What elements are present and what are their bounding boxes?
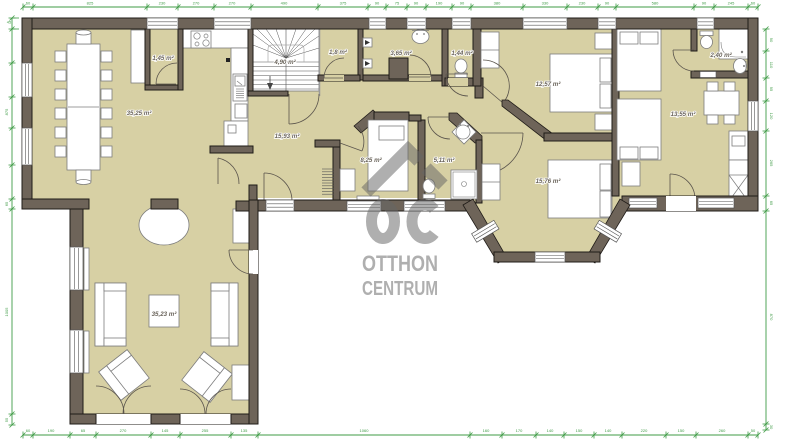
svg-text:60: 60 bbox=[26, 428, 31, 433]
svg-text:90: 90 bbox=[460, 1, 465, 6]
svg-text:60: 60 bbox=[751, 1, 756, 6]
svg-text:120: 120 bbox=[769, 113, 774, 120]
svg-text:825: 825 bbox=[87, 1, 94, 6]
svg-text:1,8 m²: 1,8 m² bbox=[329, 49, 348, 56]
svg-text:870: 870 bbox=[769, 314, 774, 321]
svg-text:270: 270 bbox=[120, 428, 127, 433]
svg-text:CENTRUM: CENTRUM bbox=[362, 278, 438, 300]
svg-text:190: 190 bbox=[48, 428, 55, 433]
svg-text:8,25 m²: 8,25 m² bbox=[360, 157, 382, 164]
svg-text:1005: 1005 bbox=[4, 307, 9, 317]
svg-text:90: 90 bbox=[414, 1, 419, 6]
svg-text:OTTHON: OTTHON bbox=[362, 251, 438, 276]
svg-text:220: 220 bbox=[641, 428, 648, 433]
svg-text:255: 255 bbox=[202, 428, 209, 433]
svg-text:160: 160 bbox=[483, 428, 490, 433]
svg-text:5,11 m²: 5,11 m² bbox=[434, 157, 456, 164]
svg-text:12,57 m²: 12,57 m² bbox=[536, 81, 562, 88]
svg-text:230: 230 bbox=[159, 1, 166, 6]
svg-text:65: 65 bbox=[769, 201, 774, 206]
svg-text:13,55 m²: 13,55 m² bbox=[671, 111, 697, 118]
svg-text:65: 65 bbox=[81, 428, 86, 433]
svg-text:135: 135 bbox=[241, 428, 248, 433]
svg-text:45: 45 bbox=[7, 20, 12, 25]
svg-text:2,40 m²: 2,40 m² bbox=[709, 52, 732, 59]
svg-text:140: 140 bbox=[547, 428, 554, 433]
svg-text:15,93 m²: 15,93 m² bbox=[275, 133, 301, 140]
svg-text:170: 170 bbox=[516, 428, 523, 433]
svg-text:330: 330 bbox=[542, 1, 549, 6]
svg-text:1,44 m²: 1,44 m² bbox=[451, 50, 473, 57]
svg-text:50: 50 bbox=[751, 428, 756, 433]
svg-text:30: 30 bbox=[769, 425, 774, 430]
svg-text:90: 90 bbox=[702, 1, 707, 6]
svg-text:15,76 m²: 15,76 m² bbox=[536, 178, 562, 185]
svg-text:150: 150 bbox=[576, 428, 583, 433]
svg-text:90: 90 bbox=[375, 1, 380, 6]
svg-text:3,65 m²: 3,65 m² bbox=[390, 50, 412, 57]
svg-text:875: 875 bbox=[4, 108, 9, 115]
svg-text:145: 145 bbox=[162, 428, 169, 433]
svg-text:150: 150 bbox=[678, 428, 685, 433]
svg-text:265: 265 bbox=[769, 160, 774, 167]
svg-text:375: 375 bbox=[340, 1, 347, 6]
svg-text:65: 65 bbox=[4, 201, 9, 206]
svg-text:4,90 m²: 4,90 m² bbox=[273, 59, 296, 66]
svg-text:230: 230 bbox=[579, 1, 586, 6]
svg-text:55: 55 bbox=[4, 417, 9, 422]
svg-text:110: 110 bbox=[769, 62, 774, 69]
svg-text:270: 270 bbox=[229, 1, 236, 6]
svg-text:75: 75 bbox=[395, 1, 400, 6]
svg-text:1,45 m²: 1,45 m² bbox=[152, 55, 174, 62]
svg-text:90: 90 bbox=[769, 38, 774, 43]
svg-text:35,23 m²: 35,23 m² bbox=[152, 311, 178, 318]
svg-text:90: 90 bbox=[605, 1, 610, 6]
svg-text:95: 95 bbox=[769, 87, 774, 92]
svg-text:260: 260 bbox=[719, 428, 726, 433]
svg-text:35,25 m²: 35,25 m² bbox=[127, 110, 153, 117]
svg-text:380: 380 bbox=[494, 1, 501, 6]
svg-text:580: 580 bbox=[652, 1, 659, 6]
svg-text:60: 60 bbox=[26, 1, 31, 6]
svg-text:270: 270 bbox=[193, 1, 200, 6]
svg-text:140: 140 bbox=[605, 428, 612, 433]
svg-text:490: 490 bbox=[281, 1, 288, 6]
svg-text:1060: 1060 bbox=[360, 428, 370, 433]
svg-text:190: 190 bbox=[436, 1, 443, 6]
svg-text:245: 245 bbox=[728, 1, 735, 6]
